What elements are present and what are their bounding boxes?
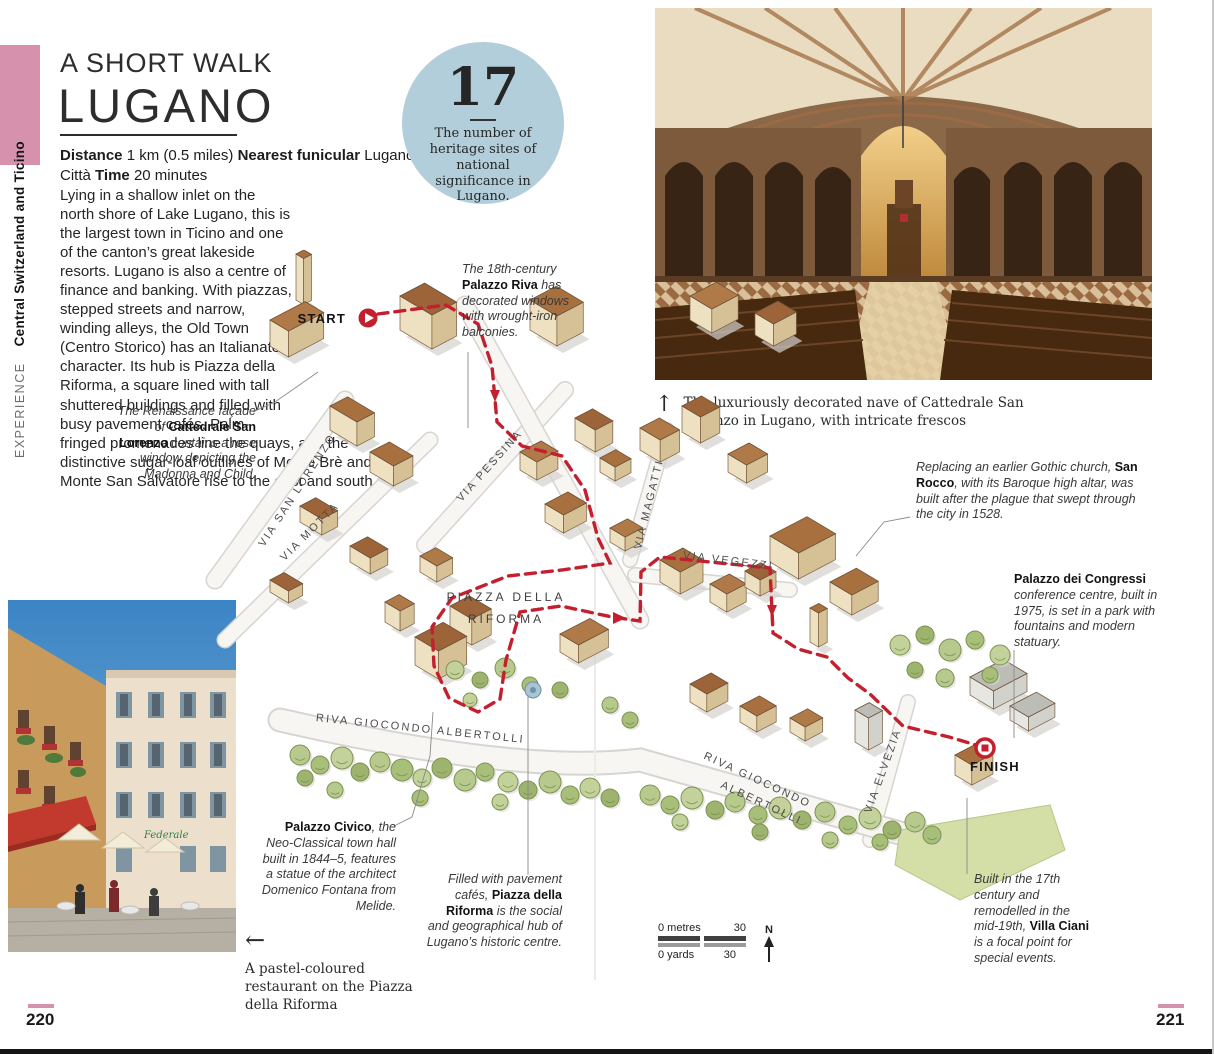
annotation-palazzo-civico: Palazzo Civico, the Neo-Classical town h… [256,820,396,915]
scale-metres-max: 30 [734,922,746,934]
time-label: Time [95,167,130,184]
north-compass: N [764,924,774,962]
street-label-piazza-della: PIAZZA DELLA [447,590,566,604]
annotation-text: conference centre, built in 1975, is set… [1014,588,1157,649]
sidebar-chapter: Central Switzerland and Ticino [12,141,27,346]
annotation-text: The 18th-century [462,262,557,276]
distance-value: 1 km (0.5 miles) [127,147,234,164]
start-marker: START [298,309,378,328]
street-label-via-pessina: VIA PESSINA [455,428,526,504]
walk-kicker: A SHORT WALK [60,48,273,79]
annotation-text: is a focal point for special events. [974,935,1072,965]
left-page-number: 220 [26,1010,54,1030]
start-label: START [298,311,346,326]
annotation-piazza-della-riforma: Filled with pavement cafés, Piazza della… [424,872,562,951]
annotation-name: Villa Ciani [1030,919,1090,933]
scale-yards-max: 30 [724,949,736,961]
scale-bar: 0 metres 30 0 yards 30 [658,922,746,961]
distance-label: Distance [60,147,123,164]
stat-divider [470,119,496,121]
walk-meta: Distance 1 km (0.5 miles) Nearest funicu… [60,146,416,185]
fountain-center [530,687,536,693]
guidebook-spread: EXPERIENCECentral Switzerland and Ticino… [0,0,1214,1054]
annotation-san-rocco: Replacing an earlier Gothic church, San … [916,460,1148,523]
street-label-riforma: RIFORMA [468,612,544,626]
annotation-name: Palazzo Civico [285,820,372,834]
annotation-palazzo-riva: The 18th-century Palazzo Riva has decora… [462,262,580,341]
book-edge-bottom [0,1049,1214,1054]
stat-caption: The number of heritage sites of national… [419,126,547,205]
finish-label: FINISH [970,759,1020,774]
north-arrow-icon [764,936,774,947]
title-rule [60,134,237,136]
annotation-cattedrale-san-lorenzo: The Renaissance façade of Cattedrale San… [116,404,256,483]
funicular-label: Nearest funicular [238,147,361,164]
stat-number: 17 [402,42,564,114]
page-title: LUGANO [58,78,275,133]
right-page-tick [1158,1004,1184,1008]
scale-metres-label: 0 metres [658,922,701,934]
annotation-palazzo-dei-congressi: Palazzo dei Congressi conference centre,… [1014,572,1169,651]
right-page-number: 221 [1156,1010,1184,1030]
time-value: 20 minutes [134,167,207,184]
scale-yards-label: 0 yards [658,949,695,961]
left-page-tick [28,1004,54,1008]
annotation-text: Replacing an earlier Gothic church, [916,460,1115,474]
sidebar-chapter-label: EXPERIENCECentral Switzerland and Ticino [12,141,27,458]
annotation-name: Palazzo dei Congressi [1014,572,1146,586]
north-label: N [765,924,773,936]
sidebar-eyebrow: EXPERIENCE [13,362,27,458]
annotation-villa-ciani: Built in the 17th century and remodelled… [974,872,1096,967]
annotation-name: Palazzo Riva [462,278,538,292]
stat-badge: 17 The number of heritage sites of natio… [402,42,564,204]
